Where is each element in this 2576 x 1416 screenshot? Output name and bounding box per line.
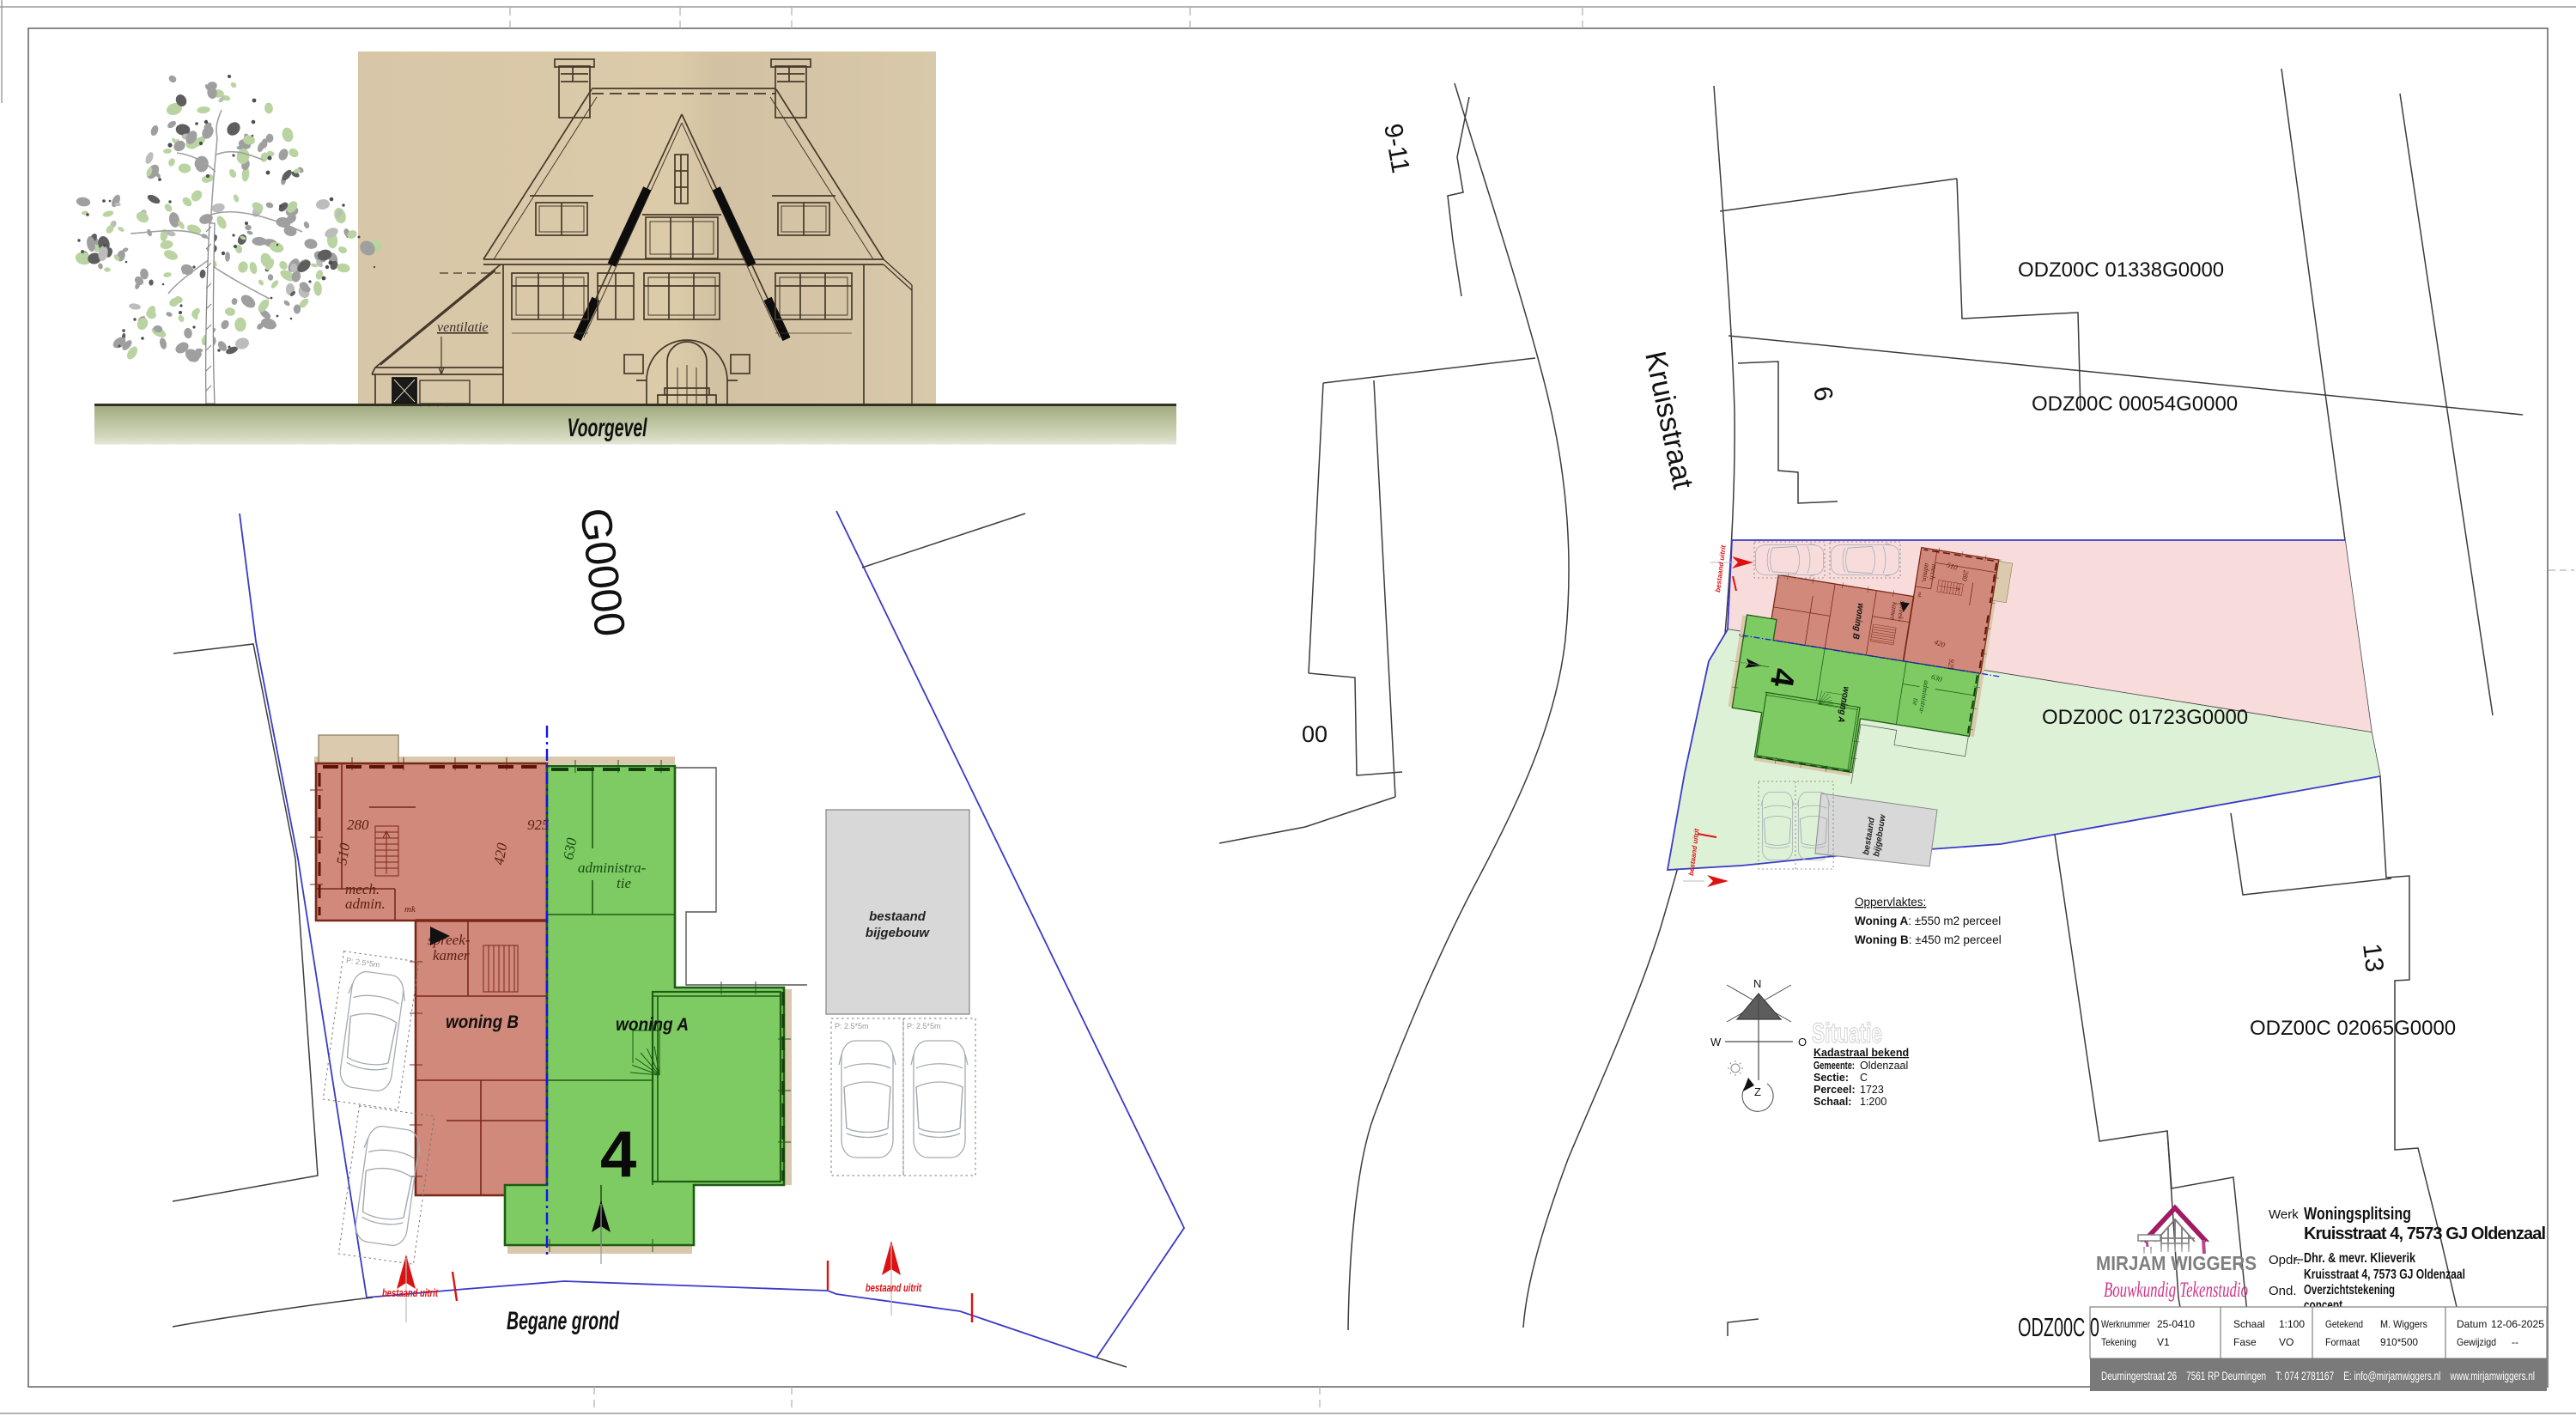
svg-text:1:200: 1:200 (1860, 1096, 1886, 1108)
svg-text:ODZ00C 00054G0000: ODZ00C 00054G0000 (2032, 392, 2238, 416)
svg-text:bijgebouw: bijgebouw (866, 926, 930, 940)
svg-text:bestaand: bestaand (869, 909, 927, 924)
svg-text:W: W (1710, 1036, 1722, 1048)
svg-text:25-0410: 25-0410 (2157, 1318, 2195, 1330)
svg-text:Fase: Fase (2233, 1336, 2257, 1348)
svg-text:1:100: 1:100 (2279, 1318, 2305, 1330)
svg-text:9-11: 9-11 (1378, 121, 1415, 175)
svg-text:Gemeente:: Gemeente: (1814, 1060, 1855, 1072)
svg-text:ODZ00C 02065G0000: ODZ00C 02065G0000 (2250, 1017, 2456, 1040)
svg-text:Werknummer: Werknummer (2101, 1318, 2150, 1330)
svg-text:Begane grond: Begane grond (507, 1307, 619, 1335)
svg-text:Werk: Werk (2269, 1207, 2299, 1222)
svg-text:C: C (1860, 1072, 1868, 1084)
svg-text:Datum: Datum (2457, 1318, 2487, 1330)
svg-text:Situatie: Situatie (1812, 1018, 1882, 1048)
svg-text:Dhr. & mevr. Klieverik: Dhr. & mevr. Klieverik (2304, 1251, 2415, 1266)
svg-text:G0000: G0000 (571, 506, 635, 640)
svg-text:12-06-2025: 12-06-2025 (2491, 1318, 2544, 1330)
svg-text:O: O (1798, 1036, 1807, 1048)
svg-text:Tekening: Tekening (2101, 1336, 2136, 1348)
svg-text:ventilatie: ventilatie (437, 320, 489, 335)
svg-text:Gewijzigd: Gewijzigd (2457, 1336, 2496, 1348)
svg-text:--: -- (2512, 1336, 2518, 1348)
svg-text:Kruisstraat 4, 7573 GJ Oldenza: Kruisstraat 4, 7573 GJ Oldenzaal (2304, 1267, 2465, 1282)
svg-text:ODZ00C 01723G0000: ODZ00C 01723G0000 (2042, 706, 2248, 729)
svg-text:Ond.: Ond. (2269, 1284, 2297, 1298)
svg-text:Z: Z (1754, 1085, 1761, 1098)
svg-text:V1: V1 (2157, 1336, 2170, 1348)
svg-text:Schaal:: Schaal: (1814, 1096, 1851, 1108)
svg-text:Overzichtstekening: Overzichtstekening (2304, 1283, 2395, 1297)
svg-text:6: 6 (1807, 384, 1838, 403)
svg-text:MIRJAM WIGGERS: MIRJAM WIGGERS (2096, 1252, 2257, 1274)
svg-text:Bouwkundig Tekenstudio: Bouwkundig Tekenstudio (2104, 1279, 2248, 1302)
svg-text:Formaat: Formaat (2325, 1336, 2360, 1348)
svg-text:Woningsplitsing: Woningsplitsing (2304, 1205, 2411, 1224)
svg-text:Deurningerstraat 26 7561 RP: Deurningerstraat 26 7561 RP Deurningen T… (2101, 1369, 2535, 1383)
svg-text:P: 2.5*5m: P: 2.5*5m (345, 956, 380, 969)
svg-text:ODZ00C 0: ODZ00C 0 (2018, 1312, 2099, 1342)
svg-text:Perceel:: Perceel: (1814, 1084, 1856, 1096)
svg-text:Sectie:: Sectie: (1814, 1072, 1849, 1084)
svg-text:Getekend: Getekend (2325, 1318, 2363, 1330)
svg-text:910*500: 910*500 (2380, 1336, 2418, 1348)
svg-text:P: 2.5*5m: P: 2.5*5m (835, 1022, 869, 1030)
svg-text:N: N (1753, 977, 1761, 990)
svg-text:Kruisstraat 4, 7573 GJ Oldenza: Kruisstraat 4, 7573 GJ Oldenzaal (2304, 1225, 2546, 1243)
svg-text:00: 00 (1302, 721, 1327, 747)
svg-text:bestaand uitrit: bestaand uitrit (1714, 544, 1728, 593)
svg-text:VO: VO (2279, 1336, 2293, 1348)
svg-text:Oppervlaktes:: Oppervlaktes: (1855, 896, 1926, 909)
svg-text:Voorgevel: Voorgevel (568, 414, 647, 442)
svg-text:Kadastraal bekend: Kadastraal bekend (1814, 1047, 1909, 1059)
svg-text:bestaand uitrit: bestaand uitrit (382, 1286, 438, 1299)
svg-text:M. Wiggers: M. Wiggers (2380, 1318, 2427, 1330)
svg-text:Woning A: ±550 m2 perceel: Woning A: ±550 m2 perceel (1855, 915, 2001, 927)
svg-text:13: 13 (2357, 942, 2389, 974)
svg-text:Woning B: ±450 m2 perceel: Woning B: ±450 m2 perceel (1855, 933, 2002, 946)
svg-text:bestaand uitrit: bestaand uitrit (866, 1281, 921, 1294)
svg-text:Kruisstraat: Kruisstraat (1638, 349, 1699, 492)
svg-text:P: 2.5*5m: P: 2.5*5m (907, 1022, 941, 1030)
svg-text:Schaal: Schaal (2233, 1318, 2265, 1330)
svg-text:Oldenzaal: Oldenzaal (1860, 1060, 1908, 1072)
svg-text:ODZ00C 01338G0000: ODZ00C 01338G0000 (2018, 258, 2224, 282)
svg-text:1723: 1723 (1860, 1084, 1884, 1096)
